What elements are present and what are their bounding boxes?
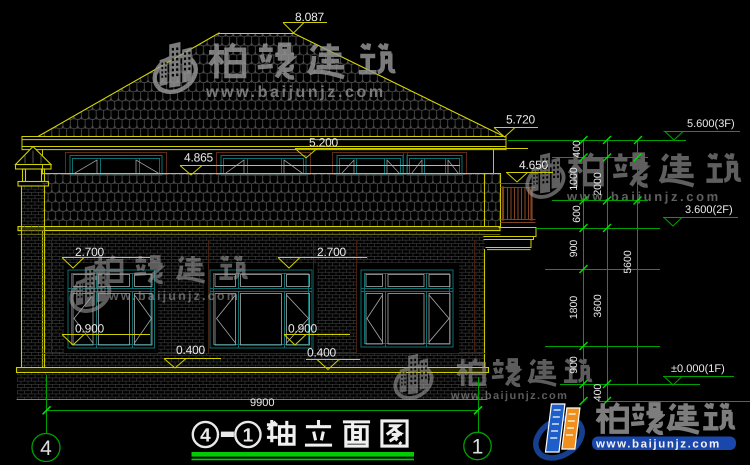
- svg-text:3.600(2F): 3.600(2F): [685, 204, 733, 216]
- svg-text:1800: 1800: [568, 296, 580, 320]
- svg-text:4: 4: [40, 437, 52, 460]
- svg-text:0.400: 0.400: [176, 343, 206, 357]
- svg-text:www.baijunjz.com: www.baijunjz.com: [595, 439, 721, 451]
- svg-text:5.720: 5.720: [506, 113, 536, 127]
- svg-text:2.700: 2.700: [75, 245, 105, 259]
- svg-text:2000: 2000: [592, 172, 604, 196]
- svg-text:www.baijunjz.com: www.baijunjz.com: [566, 189, 721, 204]
- svg-text:4.650: 4.650: [519, 158, 549, 172]
- svg-text:4: 4: [200, 426, 211, 447]
- svg-text:0.900: 0.900: [75, 322, 105, 336]
- svg-text:5600: 5600: [622, 250, 634, 274]
- svg-text:4.865: 4.865: [184, 151, 214, 165]
- svg-text:5.600(3F): 5.600(3F): [687, 118, 735, 130]
- svg-text:1: 1: [472, 436, 484, 459]
- svg-text:www.baijunjz.com: www.baijunjz.com: [205, 84, 386, 101]
- svg-text:400: 400: [592, 384, 604, 402]
- svg-text:5.200: 5.200: [309, 136, 339, 150]
- svg-text:900: 900: [568, 356, 580, 374]
- svg-text:1: 1: [243, 426, 254, 447]
- svg-text:www.baijunjz.com: www.baijunjz.com: [96, 289, 240, 303]
- svg-text:400: 400: [571, 140, 583, 158]
- svg-text:2.700: 2.700: [317, 245, 347, 259]
- svg-text:www.baijunjz.com: www.baijunjz.com: [450, 390, 568, 402]
- svg-text:±0.000(1F): ±0.000(1F): [671, 363, 725, 375]
- svg-text:600: 600: [571, 205, 583, 223]
- svg-text:9900: 9900: [250, 397, 274, 409]
- svg-text:0.900: 0.900: [288, 322, 318, 336]
- svg-text:1000: 1000: [568, 167, 580, 191]
- svg-text:8.087: 8.087: [295, 10, 325, 24]
- svg-text:3600: 3600: [592, 294, 604, 318]
- svg-text:0.400: 0.400: [307, 346, 337, 360]
- svg-text:900: 900: [568, 240, 580, 258]
